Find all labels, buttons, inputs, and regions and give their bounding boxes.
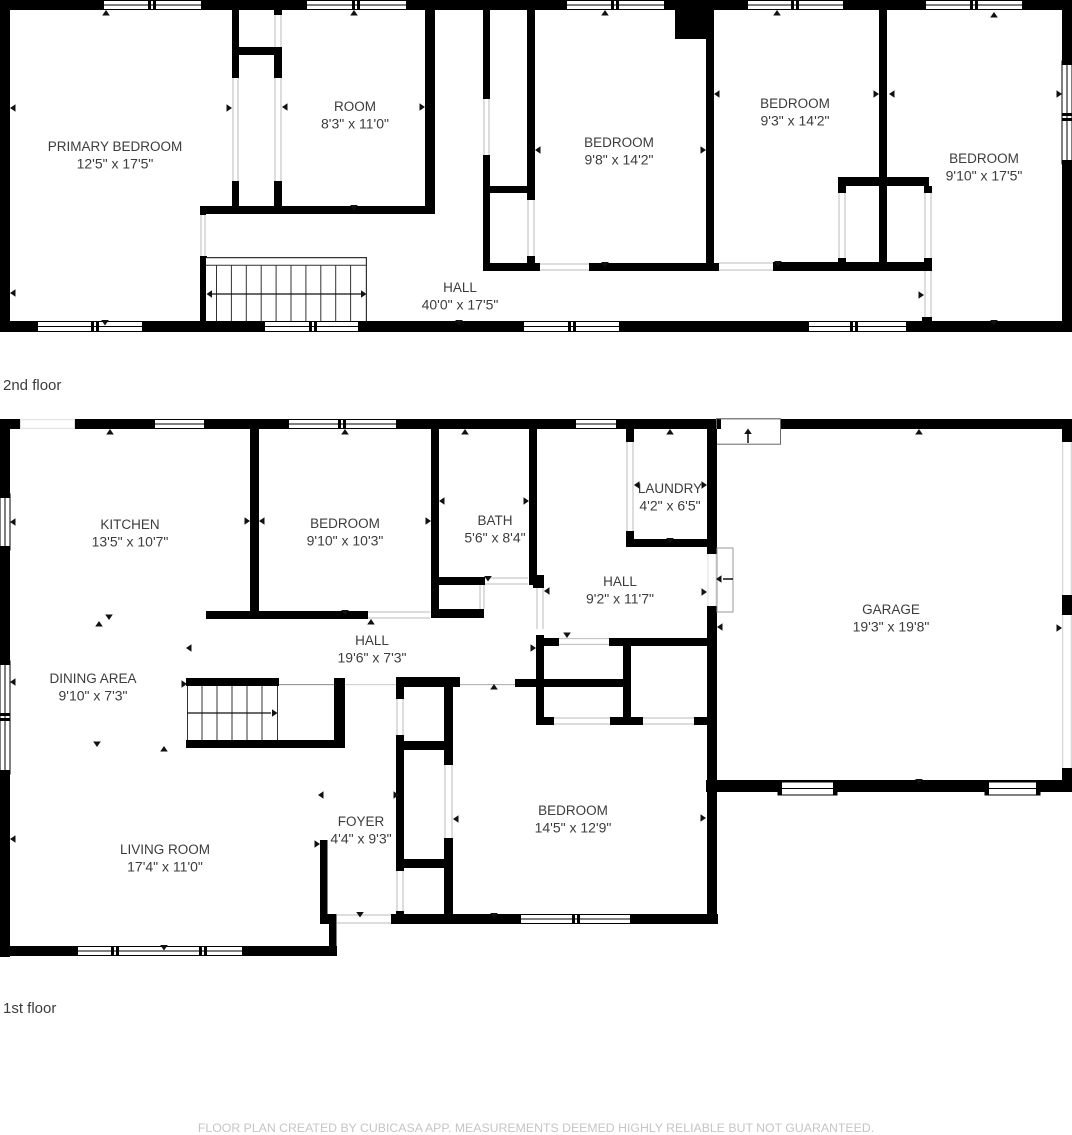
svg-text:HALL: HALL [355, 633, 389, 648]
svg-text:19'3" x 19'8": 19'3" x 19'8" [853, 619, 930, 635]
svg-text:14'5" x 12'9": 14'5" x 12'9" [535, 820, 612, 836]
svg-text:BEDROOM: BEDROOM [949, 151, 1019, 166]
svg-text:9'2" x 11'7": 9'2" x 11'7" [586, 591, 654, 607]
svg-text:HALL: HALL [443, 280, 477, 295]
svg-text:8'3" x 11'0": 8'3" x 11'0" [321, 116, 389, 132]
svg-text:ROOM: ROOM [334, 99, 376, 114]
svg-text:BATH: BATH [477, 513, 512, 528]
svg-text:17'4" x 11'0": 17'4" x 11'0" [127, 859, 203, 875]
svg-text:12'5" x 17'5": 12'5" x 17'5" [77, 156, 154, 172]
svg-text:DINING AREA: DINING AREA [49, 671, 136, 686]
svg-text:5'6" x 8'4": 5'6" x 8'4" [464, 530, 525, 546]
svg-text:KITCHEN: KITCHEN [100, 517, 159, 532]
svg-text:GARAGE: GARAGE [862, 602, 920, 617]
svg-text:PRIMARY BEDROOM: PRIMARY BEDROOM [48, 139, 183, 154]
svg-text:BEDROOM: BEDROOM [310, 516, 380, 531]
svg-text:4'2" x 6'5": 4'2" x 6'5" [639, 498, 700, 514]
svg-text:13'5" x 10'7": 13'5" x 10'7" [92, 534, 169, 550]
svg-text:9'10" x 10'3": 9'10" x 10'3" [307, 533, 384, 549]
svg-text:LIVING ROOM: LIVING ROOM [120, 842, 210, 857]
svg-text:BEDROOM: BEDROOM [538, 803, 608, 818]
svg-text:BEDROOM: BEDROOM [584, 135, 654, 150]
svg-text:2nd floor: 2nd floor [3, 377, 61, 394]
svg-text:HALL: HALL [603, 574, 637, 589]
svg-text:9'10" x 17'5": 9'10" x 17'5" [946, 168, 1023, 184]
svg-text:4'4" x 9'3": 4'4" x 9'3" [330, 831, 391, 847]
svg-text:LAUNDRY: LAUNDRY [638, 481, 702, 496]
svg-text:BEDROOM: BEDROOM [760, 96, 830, 111]
svg-text:19'6" x 7'3": 19'6" x 7'3" [338, 650, 407, 666]
svg-text:9'3" x 14'2": 9'3" x 14'2" [761, 113, 830, 129]
svg-text:9'10" x 7'3": 9'10" x 7'3" [59, 688, 128, 704]
svg-text:9'8" x 14'2": 9'8" x 14'2" [585, 152, 654, 168]
svg-text:FLOOR PLAN CREATED BY CUBICASA: FLOOR PLAN CREATED BY CUBICASA APP. MEAS… [198, 1121, 874, 1135]
svg-text:40'0" x 17'5": 40'0" x 17'5" [422, 297, 499, 313]
svg-text:1st floor: 1st floor [3, 1000, 56, 1017]
svg-text:FOYER: FOYER [338, 814, 385, 829]
